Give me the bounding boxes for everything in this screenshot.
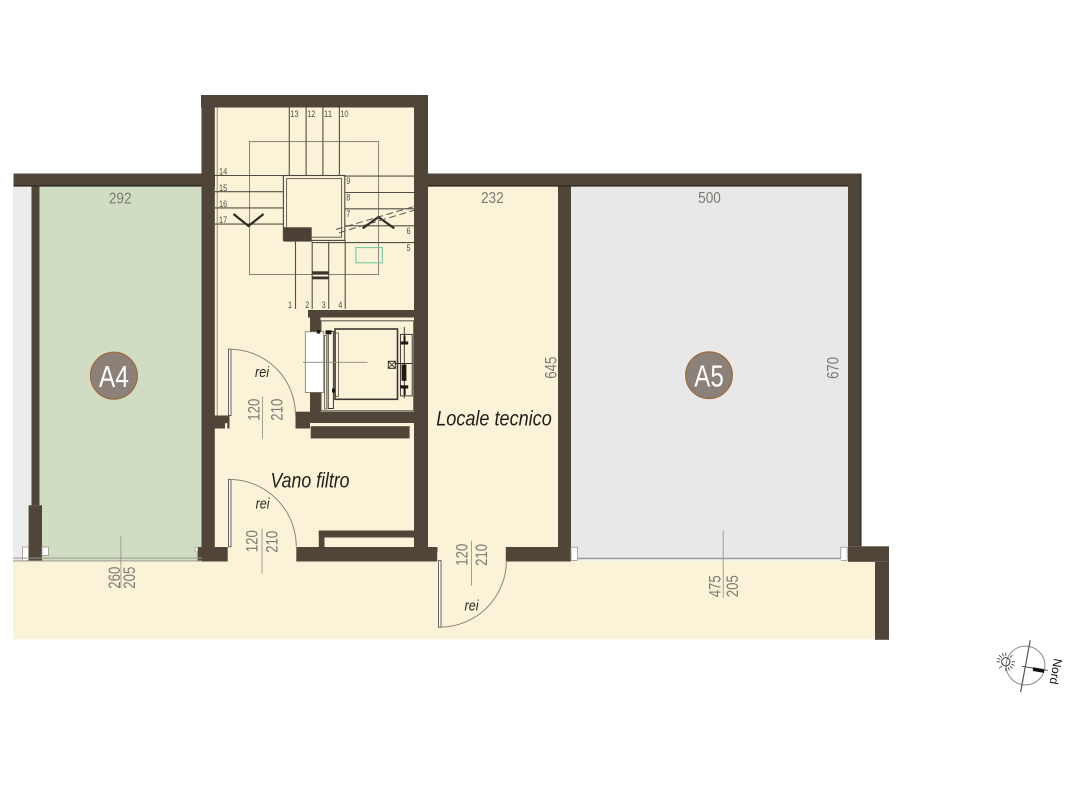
svg-text:2: 2	[305, 300, 309, 310]
svg-text:5: 5	[407, 243, 411, 253]
svg-text:13: 13	[290, 109, 298, 119]
svg-text:7: 7	[346, 209, 350, 219]
svg-text:3: 3	[322, 300, 326, 310]
svg-text:292: 292	[109, 191, 132, 208]
svg-text:475: 475	[707, 575, 725, 597]
svg-text:11: 11	[324, 109, 332, 119]
svg-text:14: 14	[219, 167, 227, 177]
svg-text:670: 670	[824, 357, 842, 379]
svg-text:15: 15	[219, 183, 227, 193]
svg-text:1: 1	[288, 300, 292, 310]
svg-text:rei: rei	[256, 495, 271, 512]
svg-text:500: 500	[698, 190, 721, 207]
svg-text:9: 9	[346, 176, 350, 186]
svg-text:A5: A5	[694, 359, 724, 394]
svg-text:12: 12	[307, 109, 315, 119]
svg-text:rei: rei	[255, 364, 270, 381]
svg-text:A4: A4	[99, 359, 129, 394]
svg-text:120: 120	[246, 399, 264, 421]
svg-text:120: 120	[244, 530, 262, 552]
svg-text:205: 205	[121, 567, 139, 589]
svg-text:4: 4	[338, 300, 342, 310]
svg-text:645: 645	[542, 357, 560, 379]
svg-text:17: 17	[219, 215, 227, 225]
svg-text:120: 120	[453, 544, 471, 566]
svg-text:rei: rei	[465, 598, 480, 615]
svg-text:210: 210	[473, 544, 491, 566]
svg-text:16: 16	[219, 199, 227, 209]
svg-text:210: 210	[264, 531, 282, 553]
svg-text:10: 10	[340, 109, 348, 119]
svg-text:210: 210	[269, 399, 287, 421]
svg-text:Locale tecnico: Locale tecnico	[436, 407, 552, 430]
svg-text:205: 205	[724, 575, 742, 597]
svg-text:8: 8	[346, 193, 350, 203]
svg-text:6: 6	[407, 226, 411, 236]
svg-text:232: 232	[481, 190, 504, 207]
svg-text:Vano filtro: Vano filtro	[271, 469, 350, 493]
